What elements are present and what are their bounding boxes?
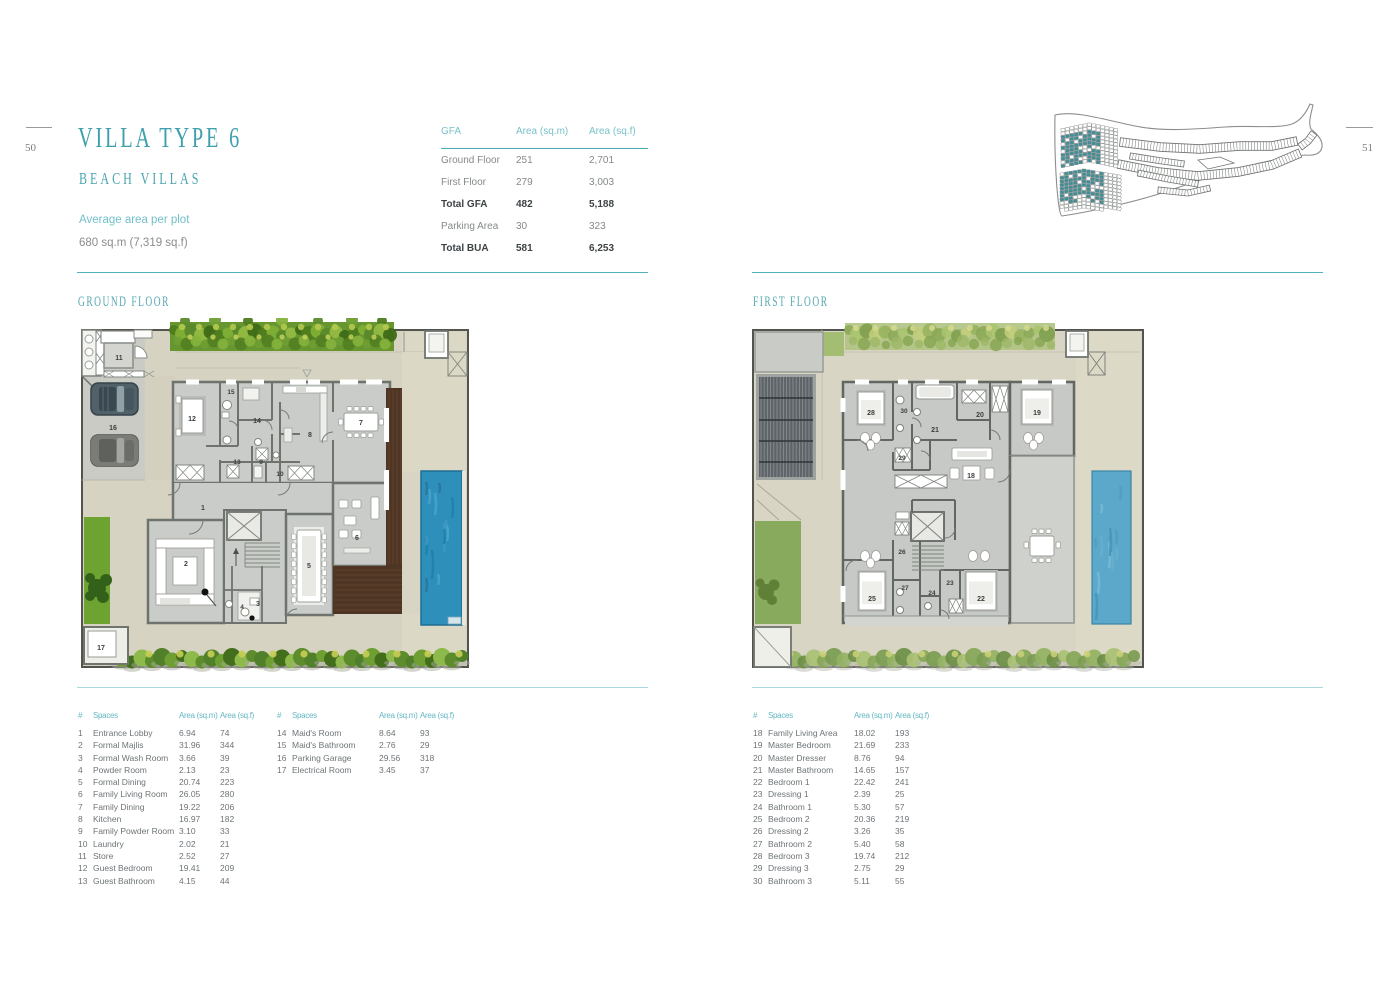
svg-text:21: 21 — [931, 427, 939, 434]
svg-text:27: 27 — [901, 585, 909, 592]
svg-text:3: 3 — [256, 601, 260, 608]
svg-text:19: 19 — [1033, 410, 1041, 417]
svg-text:2: 2 — [184, 561, 188, 568]
svg-text:10: 10 — [276, 471, 284, 478]
svg-text:13: 13 — [233, 459, 241, 466]
svg-text:14: 14 — [253, 418, 261, 425]
svg-text:22: 22 — [977, 596, 985, 603]
svg-text:28: 28 — [867, 410, 875, 417]
svg-text:23: 23 — [946, 580, 954, 587]
svg-text:9: 9 — [259, 459, 263, 466]
svg-text:5: 5 — [307, 563, 311, 570]
svg-text:4: 4 — [240, 604, 244, 611]
svg-text:16: 16 — [109, 425, 117, 432]
svg-text:12: 12 — [188, 416, 196, 423]
svg-text:15: 15 — [227, 389, 235, 396]
svg-text:8: 8 — [308, 432, 312, 439]
svg-text:26: 26 — [898, 549, 906, 556]
svg-text:7: 7 — [359, 420, 363, 427]
svg-text:18: 18 — [967, 473, 975, 480]
svg-text:25: 25 — [868, 596, 876, 603]
svg-text:6: 6 — [355, 535, 359, 542]
svg-text:24: 24 — [928, 590, 936, 597]
svg-text:1: 1 — [201, 505, 205, 512]
svg-text:11: 11 — [115, 355, 123, 362]
svg-text:20: 20 — [976, 412, 984, 419]
svg-text:17: 17 — [97, 645, 105, 652]
svg-text:30: 30 — [900, 408, 908, 415]
svg-text:29: 29 — [898, 455, 906, 462]
